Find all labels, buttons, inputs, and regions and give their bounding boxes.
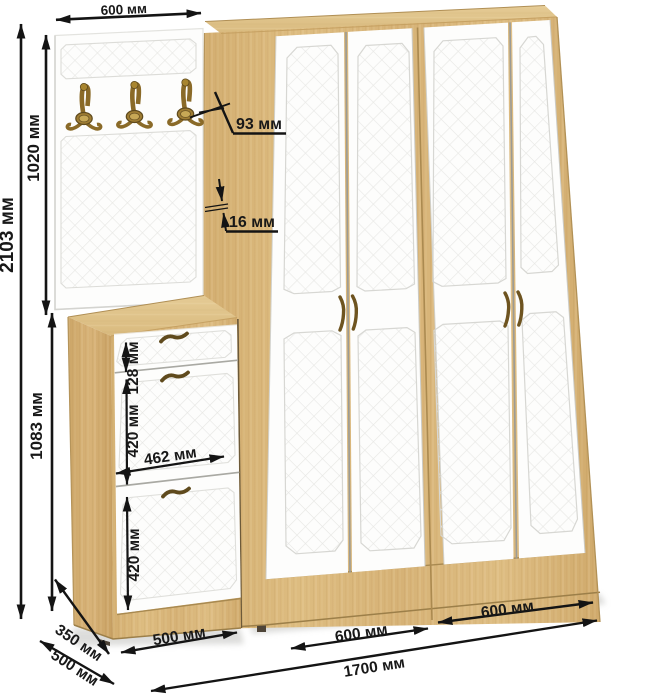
svg-text:93 мм: 93 мм	[236, 116, 282, 133]
svg-text:16 мм: 16 мм	[229, 214, 275, 231]
svg-text:1083 мм: 1083 мм	[27, 392, 46, 460]
svg-text:420 мм: 420 мм	[125, 404, 142, 457]
svg-text:600 мм: 600 мм	[100, 1, 147, 18]
svg-text:2103 мм: 2103 мм	[0, 197, 18, 273]
svg-text:1020 мм: 1020 мм	[24, 114, 43, 182]
svg-text:420 мм: 420 мм	[126, 528, 143, 581]
